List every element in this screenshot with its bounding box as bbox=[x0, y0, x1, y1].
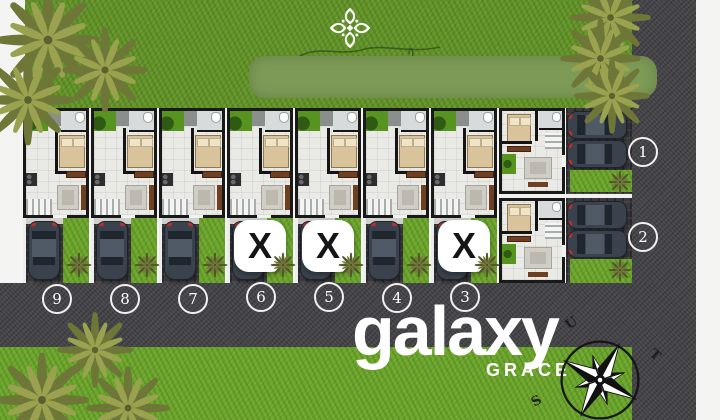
toilet-icon bbox=[348, 113, 356, 122]
car-top-view bbox=[165, 222, 195, 279]
bed bbox=[263, 135, 289, 168]
wall bbox=[463, 128, 466, 173]
wall bbox=[327, 171, 339, 174]
kitchen-counter bbox=[26, 173, 37, 186]
stairs bbox=[366, 199, 392, 215]
tv-console bbox=[353, 185, 358, 210]
wall bbox=[395, 128, 398, 173]
unit-floorplan-5 bbox=[295, 108, 361, 218]
tv-console bbox=[217, 185, 222, 210]
wall bbox=[502, 141, 532, 144]
shrub bbox=[202, 252, 228, 278]
brand-logo: galaxy bbox=[352, 296, 558, 366]
sofa bbox=[193, 185, 215, 210]
palm-tree bbox=[572, 56, 652, 136]
unit-number-marker: 1 bbox=[628, 137, 658, 167]
stairs bbox=[230, 199, 256, 215]
car-top-view bbox=[97, 222, 127, 279]
stairs bbox=[545, 133, 562, 149]
unit-number-marker: 2 bbox=[628, 222, 658, 252]
wall bbox=[327, 128, 330, 173]
garden-patch bbox=[366, 111, 388, 131]
sofa bbox=[524, 157, 552, 179]
garden-patch bbox=[502, 244, 516, 264]
entry bbox=[184, 111, 197, 126]
wall bbox=[123, 171, 135, 174]
dresser bbox=[134, 171, 154, 178]
stairs bbox=[26, 199, 52, 215]
sofa bbox=[57, 185, 79, 210]
bed bbox=[331, 135, 357, 168]
kitchen-counter bbox=[230, 173, 241, 186]
unit-number-marker: 5 bbox=[314, 282, 344, 312]
stairs bbox=[298, 199, 324, 215]
car-top-view bbox=[568, 231, 626, 257]
kitchen-counter bbox=[434, 173, 445, 186]
bed bbox=[127, 135, 153, 168]
sofa bbox=[465, 185, 487, 210]
table bbox=[528, 182, 548, 187]
wall bbox=[191, 128, 194, 173]
unit-floorplan-4 bbox=[363, 108, 429, 218]
shrub bbox=[406, 252, 432, 278]
entry bbox=[252, 111, 265, 126]
tv-console bbox=[421, 185, 426, 210]
toilet-icon bbox=[484, 113, 492, 122]
bathroom bbox=[539, 111, 562, 130]
unit-floorplan-2 bbox=[499, 198, 565, 283]
bed bbox=[507, 114, 531, 142]
wall bbox=[502, 231, 532, 234]
entry bbox=[456, 111, 469, 126]
unit-floorplan-6 bbox=[227, 108, 293, 218]
unit-floorplan-7 bbox=[159, 108, 225, 218]
bathroom bbox=[197, 111, 222, 132]
wall bbox=[535, 111, 538, 141]
garden-patch bbox=[502, 154, 516, 174]
shrub bbox=[608, 258, 632, 282]
bathroom bbox=[539, 201, 562, 220]
garden-patch bbox=[162, 111, 184, 131]
stairs bbox=[94, 199, 120, 215]
shrub bbox=[270, 252, 296, 278]
bed bbox=[399, 135, 425, 168]
wall bbox=[395, 171, 407, 174]
door-gap bbox=[562, 245, 565, 257]
car-top-view bbox=[369, 222, 399, 279]
bathroom bbox=[333, 111, 358, 132]
toilet-icon bbox=[553, 113, 560, 121]
wall bbox=[259, 128, 262, 173]
dresser bbox=[507, 146, 531, 152]
shrub bbox=[474, 252, 500, 278]
entry bbox=[388, 111, 401, 126]
unit-divider bbox=[499, 194, 632, 198]
sofa bbox=[261, 185, 283, 210]
shrub bbox=[66, 252, 92, 278]
bed bbox=[507, 204, 531, 232]
wall bbox=[123, 128, 126, 173]
wall bbox=[191, 171, 203, 174]
stairs bbox=[162, 199, 188, 215]
kitchen-counter bbox=[298, 173, 309, 186]
compass-rose-icon bbox=[552, 332, 648, 420]
dresser bbox=[406, 171, 426, 178]
dresser bbox=[507, 236, 531, 242]
floral-ornament-icon bbox=[327, 6, 373, 50]
unit-number-marker: 6 bbox=[246, 282, 276, 312]
toilet-icon bbox=[553, 203, 560, 211]
wall bbox=[463, 171, 475, 174]
kitchen-counter bbox=[366, 173, 377, 186]
unit-floorplan-8 bbox=[91, 108, 157, 218]
car-top-view bbox=[29, 222, 59, 279]
shrub bbox=[338, 252, 364, 278]
shrub bbox=[134, 252, 160, 278]
garden-patch bbox=[434, 111, 456, 131]
tv-console bbox=[149, 185, 154, 210]
sofa bbox=[524, 247, 552, 269]
dresser bbox=[202, 171, 222, 178]
shrub bbox=[608, 170, 632, 194]
bathroom bbox=[265, 111, 290, 132]
dresser bbox=[474, 171, 494, 178]
stairs bbox=[545, 223, 562, 239]
garden-patch bbox=[298, 111, 320, 131]
sofa bbox=[397, 185, 419, 210]
bed bbox=[467, 135, 493, 168]
tv-console bbox=[489, 185, 494, 210]
palm-tree bbox=[0, 350, 92, 420]
door-gap bbox=[562, 155, 565, 167]
car-top-view bbox=[568, 202, 626, 228]
bathroom bbox=[469, 111, 494, 132]
bathroom bbox=[401, 111, 426, 132]
site-plan: X X X 9 8 7 6 5 4 3 1 2 bbox=[0, 0, 720, 420]
palm-tree bbox=[60, 25, 150, 115]
dresser bbox=[66, 171, 86, 178]
tv-console bbox=[285, 185, 290, 210]
dresser bbox=[270, 171, 290, 178]
car-top-view bbox=[568, 141, 626, 167]
kitchen-counter bbox=[162, 173, 173, 186]
toilet-icon bbox=[212, 113, 220, 122]
entry bbox=[320, 111, 333, 126]
unit-floorplan-1 bbox=[499, 108, 565, 194]
kitchen-counter bbox=[94, 173, 105, 186]
toilet-icon bbox=[416, 113, 424, 122]
unit-floorplan-3 bbox=[431, 108, 497, 218]
tv-console bbox=[81, 185, 86, 210]
sofa bbox=[329, 185, 351, 210]
toilet-icon bbox=[280, 113, 288, 122]
stairs bbox=[434, 199, 460, 215]
wall bbox=[259, 171, 271, 174]
wall bbox=[55, 171, 67, 174]
wall bbox=[535, 201, 538, 231]
garden-patch bbox=[230, 111, 252, 131]
sofa bbox=[125, 185, 147, 210]
unit-number-marker: 7 bbox=[178, 284, 208, 314]
palm-tree bbox=[84, 364, 172, 420]
bed bbox=[195, 135, 221, 168]
table bbox=[528, 272, 548, 277]
dresser bbox=[338, 171, 358, 178]
